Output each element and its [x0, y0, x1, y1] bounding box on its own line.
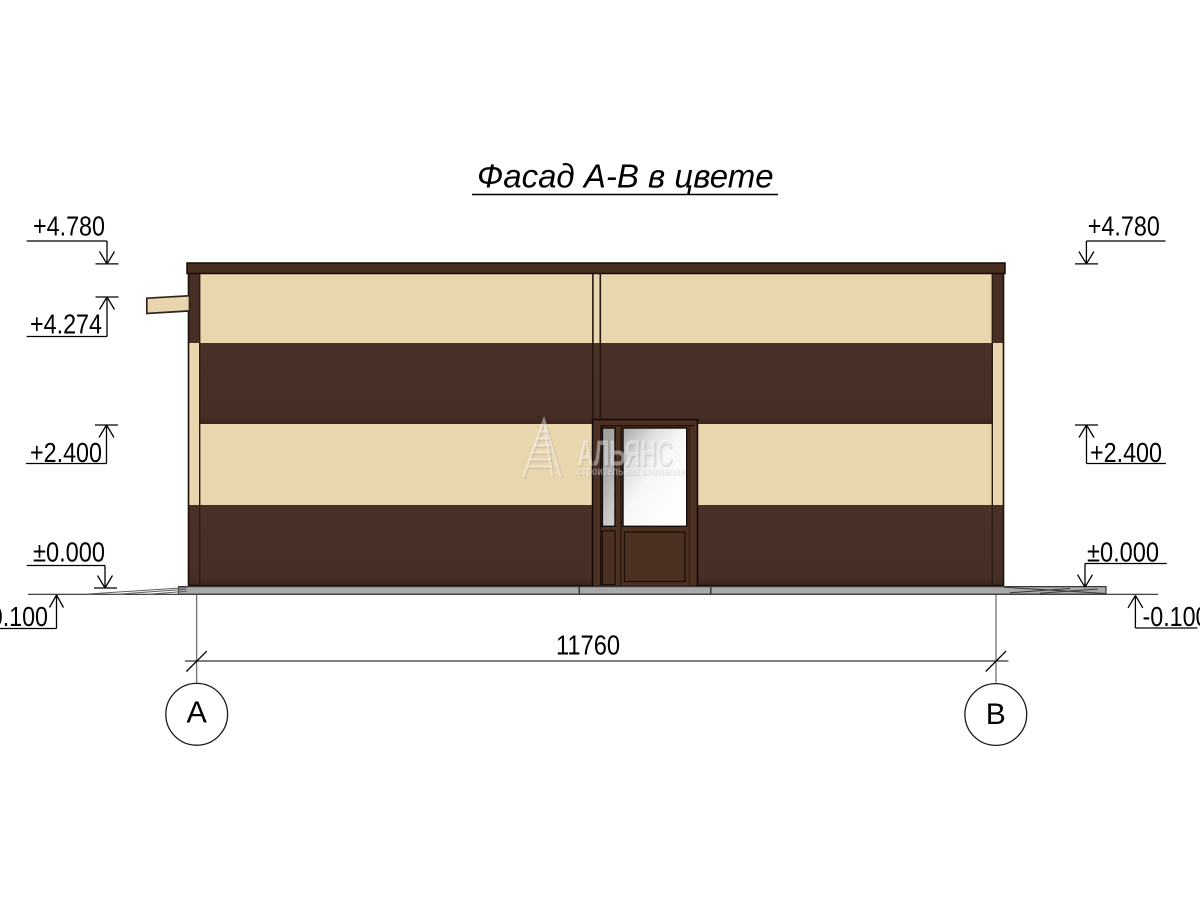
- svg-text:В: В: [986, 698, 1006, 731]
- svg-text:+4.780: +4.780: [1088, 211, 1160, 242]
- svg-text:±0.000: ±0.000: [1087, 537, 1159, 568]
- svg-text:+2.400: +2.400: [30, 437, 102, 468]
- svg-text:11760: 11760: [556, 630, 620, 661]
- svg-text:+4.274: +4.274: [30, 309, 102, 340]
- svg-text:Фасад А-В в цвете: Фасад А-В в цвете: [477, 158, 774, 195]
- svg-text:строительная компания: строительная компания: [577, 464, 685, 478]
- svg-text:-0.100: -0.100: [0, 601, 48, 632]
- svg-text:+4.780: +4.780: [33, 211, 105, 242]
- svg-text:+2.400: +2.400: [1090, 437, 1162, 468]
- svg-text:-0.100: -0.100: [1143, 601, 1200, 632]
- svg-text:A: A: [187, 696, 208, 730]
- svg-text:±0.000: ±0.000: [33, 537, 105, 568]
